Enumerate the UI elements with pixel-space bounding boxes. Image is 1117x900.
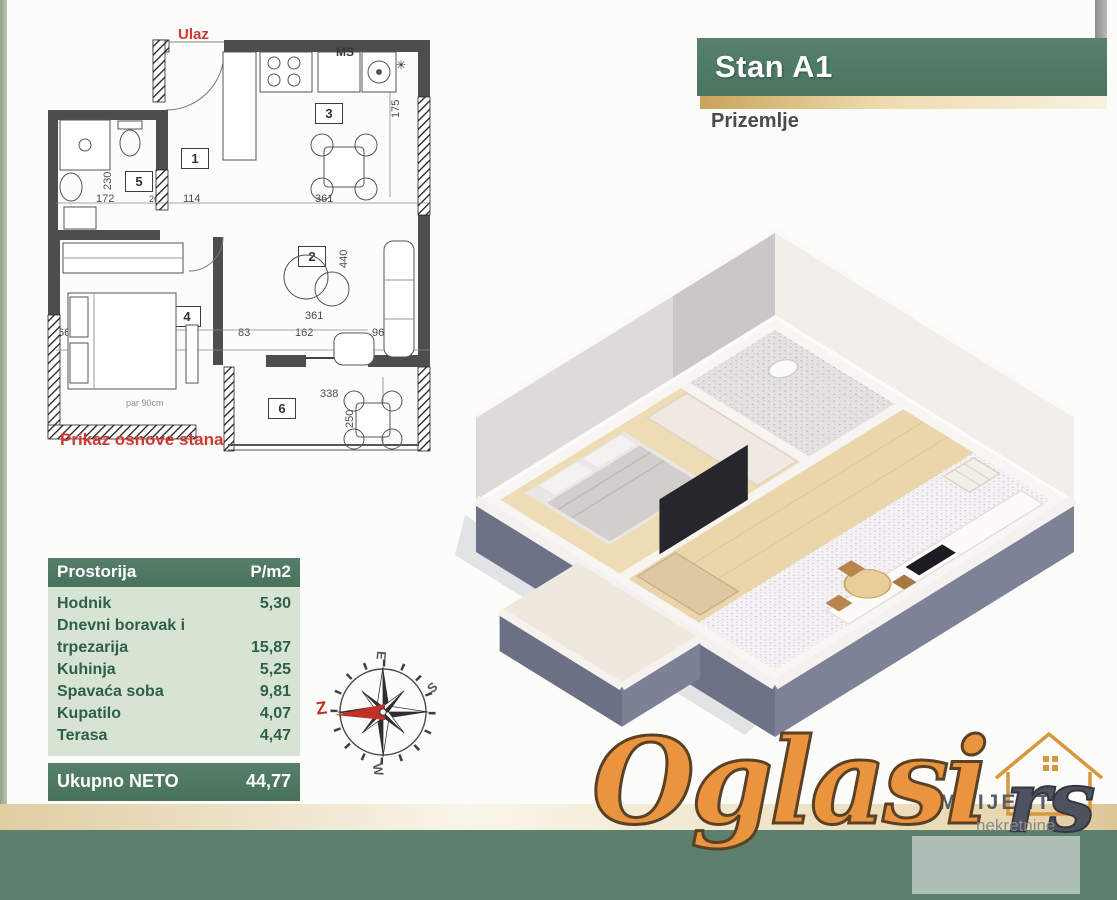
compass-label-bottom: W bbox=[370, 762, 387, 777]
bathroom-fixtures bbox=[60, 120, 142, 229]
agency-subtitle: nekretnine bbox=[976, 816, 1055, 836]
entrance-label: Ulaz bbox=[178, 26, 209, 43]
render-3d bbox=[445, 215, 1100, 760]
compass-label-left: Z bbox=[315, 697, 329, 719]
living-furniture bbox=[284, 241, 414, 365]
floor-plan-2d bbox=[38, 25, 438, 460]
table-row: Terasa 4,47 bbox=[57, 725, 291, 747]
header-gold-rule bbox=[700, 96, 1107, 109]
boiler-icon: ✳ bbox=[396, 58, 406, 72]
ms-appliance-label: MS bbox=[336, 45, 354, 59]
table-row: Spavaća soba 9,81 bbox=[57, 681, 291, 703]
header-banner: Stan A1 bbox=[697, 38, 1107, 96]
left-edge-strip bbox=[0, 0, 7, 804]
compass-rose bbox=[328, 657, 438, 767]
compass-label-top: E bbox=[373, 651, 389, 661]
table-row: Hodnik 5,30 bbox=[57, 593, 291, 615]
area-table-footer: Ukupno NETO 44,77 bbox=[48, 763, 300, 801]
table-row: Dnevni boravak i trpezarija 15,87 bbox=[57, 615, 291, 659]
watermark-tld: rs bbox=[1006, 752, 1094, 851]
col-area-header: P/m2 bbox=[250, 562, 291, 582]
table-row: Kuhinja 5,25 bbox=[57, 659, 291, 681]
bedroom-furniture bbox=[63, 243, 198, 389]
kitchen-fixtures bbox=[223, 52, 396, 160]
plan-caption: Prikaz osnove stana bbox=[60, 430, 223, 450]
area-table-header: Prostorija P/m2 bbox=[48, 558, 300, 587]
area-table: Prostorija P/m2 Hodnik 5,30 Dnevni borav… bbox=[48, 558, 300, 801]
total-value: 44,77 bbox=[246, 771, 291, 792]
terrace-set bbox=[344, 391, 402, 449]
area-table-body: Hodnik 5,30 Dnevni boravak i trpezarija … bbox=[48, 587, 300, 756]
total-label: Ukupno NETO bbox=[57, 771, 179, 792]
col-room-header: Prostorija bbox=[57, 562, 136, 582]
floor-level-label: Prizemlje bbox=[711, 110, 799, 133]
dining-set bbox=[311, 134, 377, 200]
watermark-brand: Oglasi bbox=[592, 712, 986, 851]
table-row: Kupatilo 4,07 bbox=[57, 703, 291, 725]
apartment-title: Stan A1 bbox=[697, 49, 833, 85]
